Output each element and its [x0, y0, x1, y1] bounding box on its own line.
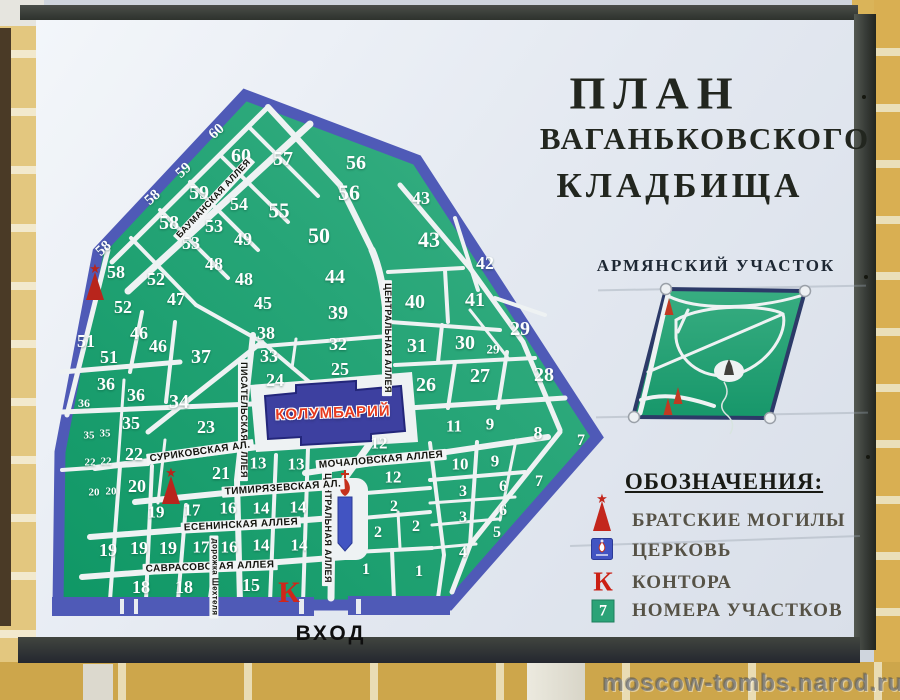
- alley-label: БАУМАНСКАЯ АЛЛЕЯ: [173, 155, 255, 242]
- watermark: moscow-tombs.narod.ru: [602, 670, 900, 698]
- church-icon: [591, 538, 613, 560]
- sign-title-line-3: КЛАДБИЩА: [557, 166, 804, 206]
- sign-title-line-1: ПЛАН: [569, 67, 740, 120]
- office-k-symbol: К: [278, 576, 300, 610]
- sign-title-line-2: ВАГАНЬКОВСКОГО: [540, 121, 870, 157]
- alley-label: ЕСЕНИНСКАЯ АЛЛЕЯ: [181, 516, 302, 533]
- plot-number-icon: 7: [592, 600, 615, 623]
- legend-label-plot-numbers: НОМЕРА УЧАСТКОВ: [632, 600, 843, 622]
- legend-label-mass-graves: БРАТСКИЕ МОГИЛЫ: [632, 510, 846, 532]
- alley-labels-layer: БАУМАНСКАЯ АЛЛЕЯЦЕНТРАЛЬНАЯ АЛЛЕЯЦЕНТРАЛ…: [0, 0, 900, 700]
- alley-label: ЦЕНТРАЛЬНАЯ АЛЛЕЯ: [382, 280, 392, 396]
- legend-label-church: ЦЕРКОВЬ: [632, 540, 731, 562]
- alley-label: дорожка Шехтеля: [210, 536, 219, 619]
- armenian-section-label: АРМЯНСКИЙ УЧАСТОК: [597, 256, 836, 276]
- mass-graves-icon: ★: [589, 491, 615, 533]
- alley-label: ПИСАТЕЛЬСКАЯ АЛЛЕЯ: [238, 359, 248, 481]
- svg-text:★: ★: [596, 491, 608, 506]
- alley-label: МОЧАЛОВСКАЯ АЛЛЕЯ: [315, 449, 446, 471]
- office-icon: К: [593, 567, 613, 598]
- photo-of-cemetery-map-sign: ★ ★: [0, 0, 900, 700]
- legend-title: ОБОЗНАЧЕНИЯ:: [625, 469, 823, 495]
- entrance-label: ВХОД: [296, 622, 367, 646]
- legend-label-office: КОНТОРА: [632, 572, 732, 594]
